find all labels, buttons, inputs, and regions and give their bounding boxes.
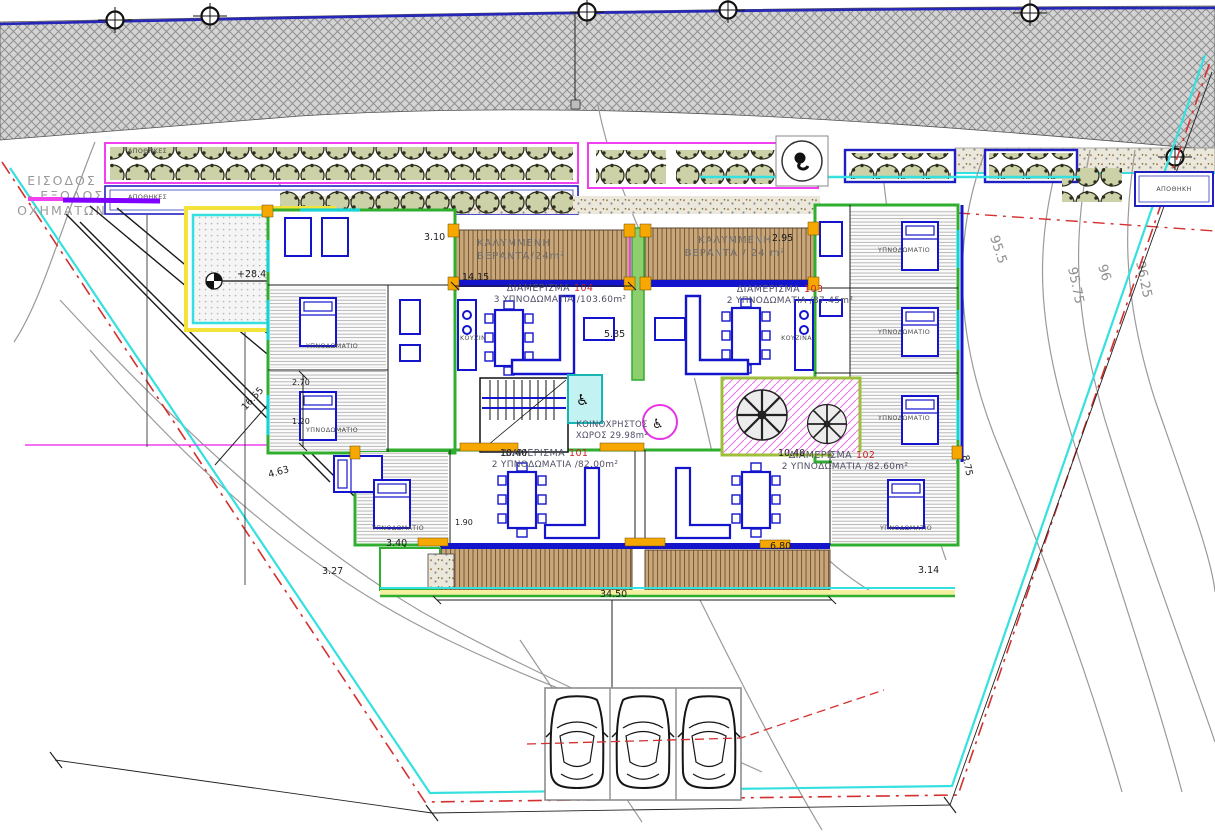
- storage-strip-label: ΑΠΟΘΗΚΕΣ: [128, 148, 167, 155]
- contour-label: 96.25: [1132, 260, 1154, 300]
- hedge-row: [1062, 168, 1122, 202]
- apartment-details: 2 ΥΠΝΟΔΩΜΑΤΙΑ /82.60m²: [782, 462, 909, 472]
- contour: [1128, 150, 1215, 592]
- contour-label: 95.75: [1064, 266, 1086, 306]
- dimension: 3.27: [322, 566, 343, 577]
- dimension: 5.35: [604, 329, 625, 340]
- wheelchair-icon: ♿: [652, 417, 664, 432]
- dimension: 3.14: [918, 565, 939, 576]
- dimension: 1.20: [292, 417, 310, 426]
- dimension: 10.40: [500, 448, 527, 459]
- hedge-row: [989, 153, 1073, 179]
- veranda-label: ΚΑΛΥΜΜΕΝΗ: [698, 235, 772, 246]
- dimension: 2.95: [772, 233, 793, 244]
- dimension: 16.55: [240, 385, 267, 412]
- dimension: 8.75: [959, 454, 974, 477]
- core: ♿ ♿ ΚΟΙΝΟΧΡΗΣΤΟΣ ΧΩΡΟΣ 29.98m²: [480, 375, 677, 452]
- veranda-area: ΒΕΡΑΝΤΑ/24m²: [477, 251, 565, 262]
- room-label: ΥΠΝΟΔΩΜΑΤΙΟ: [877, 247, 930, 254]
- communal-label: ΚΟΙΝΟΧΡΗΣΤΟΣ: [576, 420, 647, 430]
- dimension: 1.90: [455, 518, 473, 527]
- contour: [1043, 152, 1183, 792]
- dimension: 34.50: [600, 589, 627, 600]
- room-label: ΥΠΝΟΔΩΜΑΤΙΟ: [305, 343, 358, 350]
- apartment-number: 102: [856, 450, 875, 461]
- bed-symbol: [888, 480, 924, 528]
- site-plan-drawing: 95.5 95.75 96 96.25 95 ΑΠΟΘΗΚΕΣ ΑΠΟΘΗΚΕΣ: [0, 0, 1215, 832]
- room-label: ΥΠΝΟΔΩΜΑΤΙΟ: [305, 427, 358, 434]
- apartment-details: 2 ΥΠΝΟΔΩΜΑΤΙΑ /82.00m²: [492, 460, 619, 470]
- boundary-red-dashed-top: [958, 213, 1215, 231]
- gate-violet: [63, 200, 160, 201]
- entrance-label: ΕΙΣΟΔΟΣ: [27, 173, 97, 188]
- apartment-details: 2 ΥΠΝΟΔΩΜΑΤΙΑ /87.45m²: [727, 296, 854, 306]
- room-label: ΥΠΝΟΔΩΜΑΤΙΟ: [877, 415, 930, 422]
- yellow-edge: [380, 590, 955, 595]
- kitchen-label: ΚΟΥΖΙΝΑ: [781, 335, 812, 342]
- party-wall: [632, 228, 644, 380]
- apartment-number: 101: [569, 448, 588, 459]
- room-label: ΥΠΝΟΔΩΜΑΤΙΟ: [371, 525, 424, 532]
- room-label: ΥΠΝΟΔΩΜΑΤΙΟ: [877, 329, 930, 336]
- apartment-name: ΔΙΑΜΕΡΙΣΜΑ: [507, 283, 570, 294]
- entrance-label: ΟΧΗΜΑΤΩΝ: [17, 203, 107, 218]
- bed-symbol: [902, 222, 938, 270]
- dimension: 10.40: [778, 448, 805, 459]
- tree-symbol-icon: [808, 405, 847, 444]
- room-label: ΥΠΝΟΔΩΜΑΤΙΟ: [879, 525, 932, 532]
- parking-stalls: [545, 688, 741, 800]
- veranda-label: ΚΑΛΥΜΜΕΝΗ: [477, 238, 551, 249]
- communal-area: ΧΩΡΟΣ 29.98m²: [576, 431, 648, 441]
- wheelchair-icon: ♿: [576, 391, 589, 409]
- dimension: 3.10: [424, 232, 445, 243]
- dimension: 6.80: [770, 541, 791, 552]
- bed-symbol: [300, 298, 336, 346]
- veranda-bottom: [380, 543, 955, 596]
- dimension: 3.40: [386, 538, 407, 549]
- contour: [1079, 150, 1215, 742]
- site-plan-svg: 95.5 95.75 96 96.25 95 ΑΠΟΘΗΚΕΣ ΑΠΟΘΗΚΕΣ: [0, 0, 1215, 832]
- dimension: 14.15: [462, 272, 489, 283]
- contour-label: 96: [1094, 263, 1113, 283]
- bed-symbol: [374, 480, 410, 528]
- contour: [962, 152, 1122, 792]
- apartment-number: 103: [804, 284, 823, 295]
- service-box: [571, 100, 580, 109]
- parking-area: [527, 600, 884, 800]
- hedge-row: [110, 147, 573, 180]
- veranda-area: ΒΕΡΑΝΤΑ / 24 m²: [685, 248, 786, 259]
- apartment-details: 3 ΥΠΝΟΔΩΜΑΤΙΑ /103.60m²: [494, 295, 627, 305]
- tree-symbol-icon: [737, 390, 787, 440]
- stone-pier: [428, 554, 454, 588]
- building: ΥΠΝΟΔΩΜΑΤΙΟ ΥΠΝΟΔΩΜΑΤΙΟ ΥΠΝΟΔΩΜΑΤΙΟ ΥΠΝΟ…: [262, 205, 962, 596]
- apartment-number: 104: [574, 283, 593, 294]
- contour-label: 95.5: [986, 234, 1009, 266]
- apartment-name: ΔΙΑΜΕΡΙΣΜΑ: [737, 284, 800, 295]
- hedge-row: [596, 150, 666, 184]
- tree-terrace: [722, 378, 860, 455]
- dimension: 4.63: [267, 464, 290, 480]
- hedge-row: [849, 153, 951, 179]
- dimension: 2.70: [292, 378, 310, 387]
- storage-box-label: ΑΠΟΘΗΚΗ: [1156, 186, 1191, 193]
